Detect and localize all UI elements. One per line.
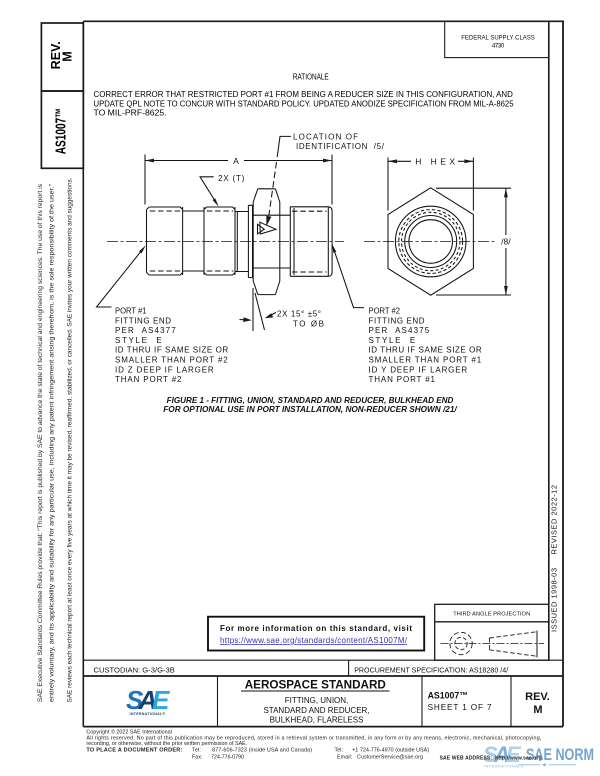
svg-text:SAE Executive Standards Commit: SAE Executive Standards Committee Rules … xyxy=(37,184,44,702)
svg-text:THAN PORT #2: THAN PORT #2 xyxy=(115,375,182,384)
svg-text:FIGURE 1 - FITTING, UNION, STA: FIGURE 1 - FITTING, UNION, STANDARD AND … xyxy=(167,396,454,405)
svg-text:2X 15° ±5°: 2X 15° ±5° xyxy=(277,310,321,319)
svg-text:H HEX: H HEX xyxy=(415,156,455,166)
svg-text:M: M xyxy=(61,51,75,61)
svg-text:LOCATION OF: LOCATION OF xyxy=(293,133,358,142)
svg-text:TO PLACE A DOCUMENT ORDER:: TO PLACE A DOCUMENT ORDER: xyxy=(86,747,182,753)
svg-text:ID THRU IF SAME SIZE OR: ID THRU IF SAME SIZE OR xyxy=(369,346,482,355)
svg-text:entirely voluntary, and its ap: entirely voluntary, and its applicabilit… xyxy=(49,184,56,702)
svg-text:Fax: 724-776-0790: Fax: 724-776-0790 xyxy=(192,755,244,761)
svg-text:A: A xyxy=(233,156,239,166)
svg-text:ID Y DEEP IF LARGER: ID Y DEEP IF LARGER xyxy=(369,365,468,374)
svg-text:IDENTIFICATION /5/: IDENTIFICATION /5/ xyxy=(296,142,385,151)
svg-text:THAN PORT #1: THAN PORT #1 xyxy=(369,375,436,384)
svg-text:FITTING, UNION,: FITTING, UNION, xyxy=(285,696,349,705)
svg-text:SMALLER THAN PORT #2: SMALLER THAN PORT #2 xyxy=(115,356,228,365)
svg-text:AS1007™: AS1007™ xyxy=(54,108,70,155)
svg-text:recording, or otherwise, witho: recording, or otherwise, without the pri… xyxy=(86,741,247,747)
svg-text:FITTING END: FITTING END xyxy=(115,316,171,325)
svg-text:STANDARD AND REDUCER,: STANDARD AND REDUCER, xyxy=(263,706,369,715)
svg-text:FOR OPTIONAL USE IN PORT INSTA: FOR OPTIONAL USE IN PORT INSTALLATION, N… xyxy=(163,405,457,414)
svg-text:ID Z DEEP IF LARGER: ID Z DEEP IF LARGER xyxy=(115,365,214,374)
svg-text:BULKHEAD, FLARELESS: BULKHEAD, FLARELESS xyxy=(270,715,364,724)
svg-text:/8/: /8/ xyxy=(501,236,511,246)
svg-text:PORT #1: PORT #1 xyxy=(115,307,147,316)
svg-text:SAE WEB ADDRESS: http://www.s: SAE WEB ADDRESS: http://www.sae.org xyxy=(440,755,542,761)
svg-text:CORRECT ERROR THAT RESTRICTED: CORRECT ERROR THAT RESTRICTED PORT #1 FR… xyxy=(94,90,514,99)
svg-text:4730: 4730 xyxy=(492,42,505,49)
svg-text:ISSUED 1998-03 REVISED 202: ISSUED 1998-03 REVISED 2022-12 xyxy=(550,485,559,632)
svg-text:TO ØB: TO ØB xyxy=(293,320,324,329)
svg-text:E: E xyxy=(152,685,170,715)
svg-text:Tel: +1 724-776-4970 (out: Tel: +1 724-776-4970 (outside USA) xyxy=(335,747,430,753)
svg-text:ID THRU IF SAME SIZE OR: ID THRU IF SAME SIZE OR xyxy=(115,346,228,355)
svg-text:SMALLER THAN PORT #1: SMALLER THAN PORT #1 xyxy=(369,356,482,365)
svg-text:For more information on this s: For more information on this standard, v… xyxy=(220,624,412,633)
svg-text:UPDATE QPL NOTE TO CONCUR WITH: UPDATE QPL NOTE TO CONCUR WITH STANDARD … xyxy=(94,99,515,108)
svg-text:Tel: 877-606-7323 (insid: Tel: 877-606-7323 (inside USA and Canada… xyxy=(192,747,312,753)
svg-text:FEDERAL SUPPLY CLASS: FEDERAL SUPPLY CLASS xyxy=(461,36,535,42)
svg-text:PORT #2: PORT #2 xyxy=(369,307,401,316)
svg-text:TO MIL-PRF-8625.: TO MIL-PRF-8625. xyxy=(94,109,167,118)
svg-text:THIRD ANGLE PROJECTION: THIRD ANGLE PROJECTION xyxy=(453,611,530,617)
svg-text:SAE reviews each technical rep: SAE reviews each technical report at lea… xyxy=(66,177,73,702)
svg-text:SHEET 1 OF 7: SHEET 1 OF 7 xyxy=(428,703,492,712)
svg-text:2X (T): 2X (T) xyxy=(218,174,245,183)
svg-text:INTERNATIONAL®: INTERNATIONAL® xyxy=(484,764,524,769)
svg-text:Email: CustomerService@sae.o: Email: CustomerService@sae.org xyxy=(337,755,423,761)
svg-text:RATIONALE: RATIONALE xyxy=(293,73,329,82)
svg-text:M: M xyxy=(533,704,542,716)
svg-text:AS1007™: AS1007™ xyxy=(428,691,469,702)
svg-text:PROCUREMENT SPECIFICATION: AS1: PROCUREMENT SPECIFICATION: AS18280 /4/ xyxy=(354,665,509,674)
svg-text:AEROSPACE STANDARD: AEROSPACE STANDARD xyxy=(245,678,386,691)
svg-text:PER AS4377: PER AS4377 xyxy=(115,326,176,335)
svg-text:FITTING END: FITTING END xyxy=(369,316,425,325)
svg-text:STYLE E: STYLE E xyxy=(115,336,162,345)
svg-text:PER AS4375: PER AS4375 xyxy=(369,326,430,335)
svg-text:INTERNATIONAL®: INTERNATIONAL® xyxy=(130,712,166,716)
svg-text:CUSTODIAN: G-3/G-3B: CUSTODIAN: G-3/G-3B xyxy=(94,665,175,674)
svg-text:STYLE E: STYLE E xyxy=(369,336,416,345)
svg-text:https://www.sae.org/standards/: https://www.sae.org/standards/content/AS… xyxy=(220,636,408,645)
svg-text:REV.: REV. xyxy=(525,691,550,703)
